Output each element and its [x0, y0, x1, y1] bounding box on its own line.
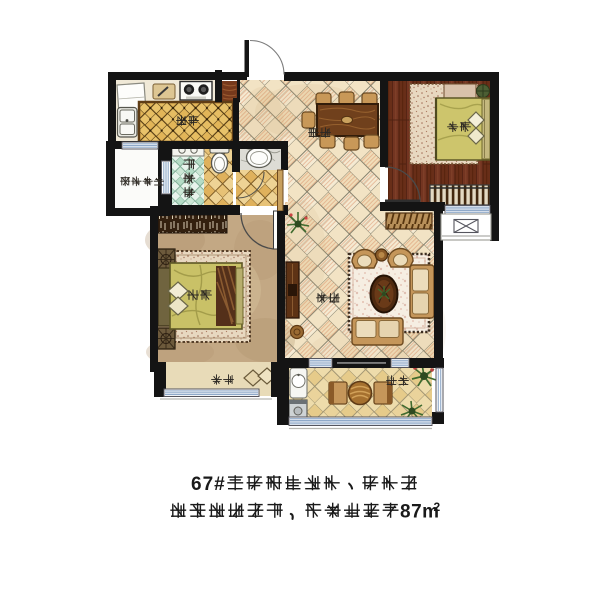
svg-text:2: 2: [434, 500, 441, 514]
svg-text:67#: 67#: [191, 474, 226, 495]
